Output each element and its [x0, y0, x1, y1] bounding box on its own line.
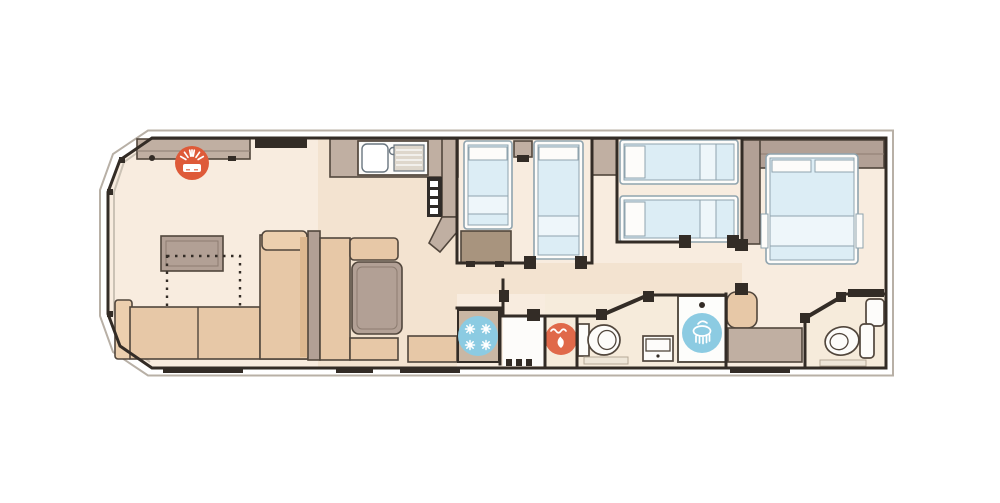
wardrobe-left: [742, 140, 760, 244]
drainer: [394, 145, 424, 171]
electric-fire-icon: [175, 146, 209, 180]
bench-bottom: [350, 338, 398, 360]
base-cabinet: [408, 336, 457, 362]
dining-table: [352, 262, 402, 334]
caravan-floorplan: [0, 0, 1000, 503]
entrance-door-hinge: [506, 359, 512, 366]
tv-unit: [255, 139, 307, 148]
tall-unit: [442, 139, 457, 217]
ottoman: [727, 292, 757, 328]
sink-bowl: [362, 144, 388, 172]
bedside-cabinet: [514, 141, 532, 157]
ensuite-basin: [866, 299, 884, 326]
cupboard: [592, 139, 617, 175]
window-sills: [163, 370, 790, 374]
bench-top: [350, 238, 398, 260]
entrance-door-hinge: [516, 359, 522, 366]
entrance-lobby-floor: [503, 316, 545, 366]
booth-divider: [308, 231, 320, 360]
ensuite-cistern: [860, 324, 874, 358]
vanity-unit: [728, 328, 802, 362]
shower-icon: [682, 313, 722, 353]
bench-left: [320, 238, 350, 360]
wardrobe-1: [461, 231, 511, 263]
fridge-freezer-icon: [458, 316, 498, 356]
floorplan-canvas: [0, 0, 1000, 503]
toilet: [588, 325, 620, 355]
dining-booth: [320, 238, 402, 360]
entrance-door-hinge: [526, 359, 532, 366]
